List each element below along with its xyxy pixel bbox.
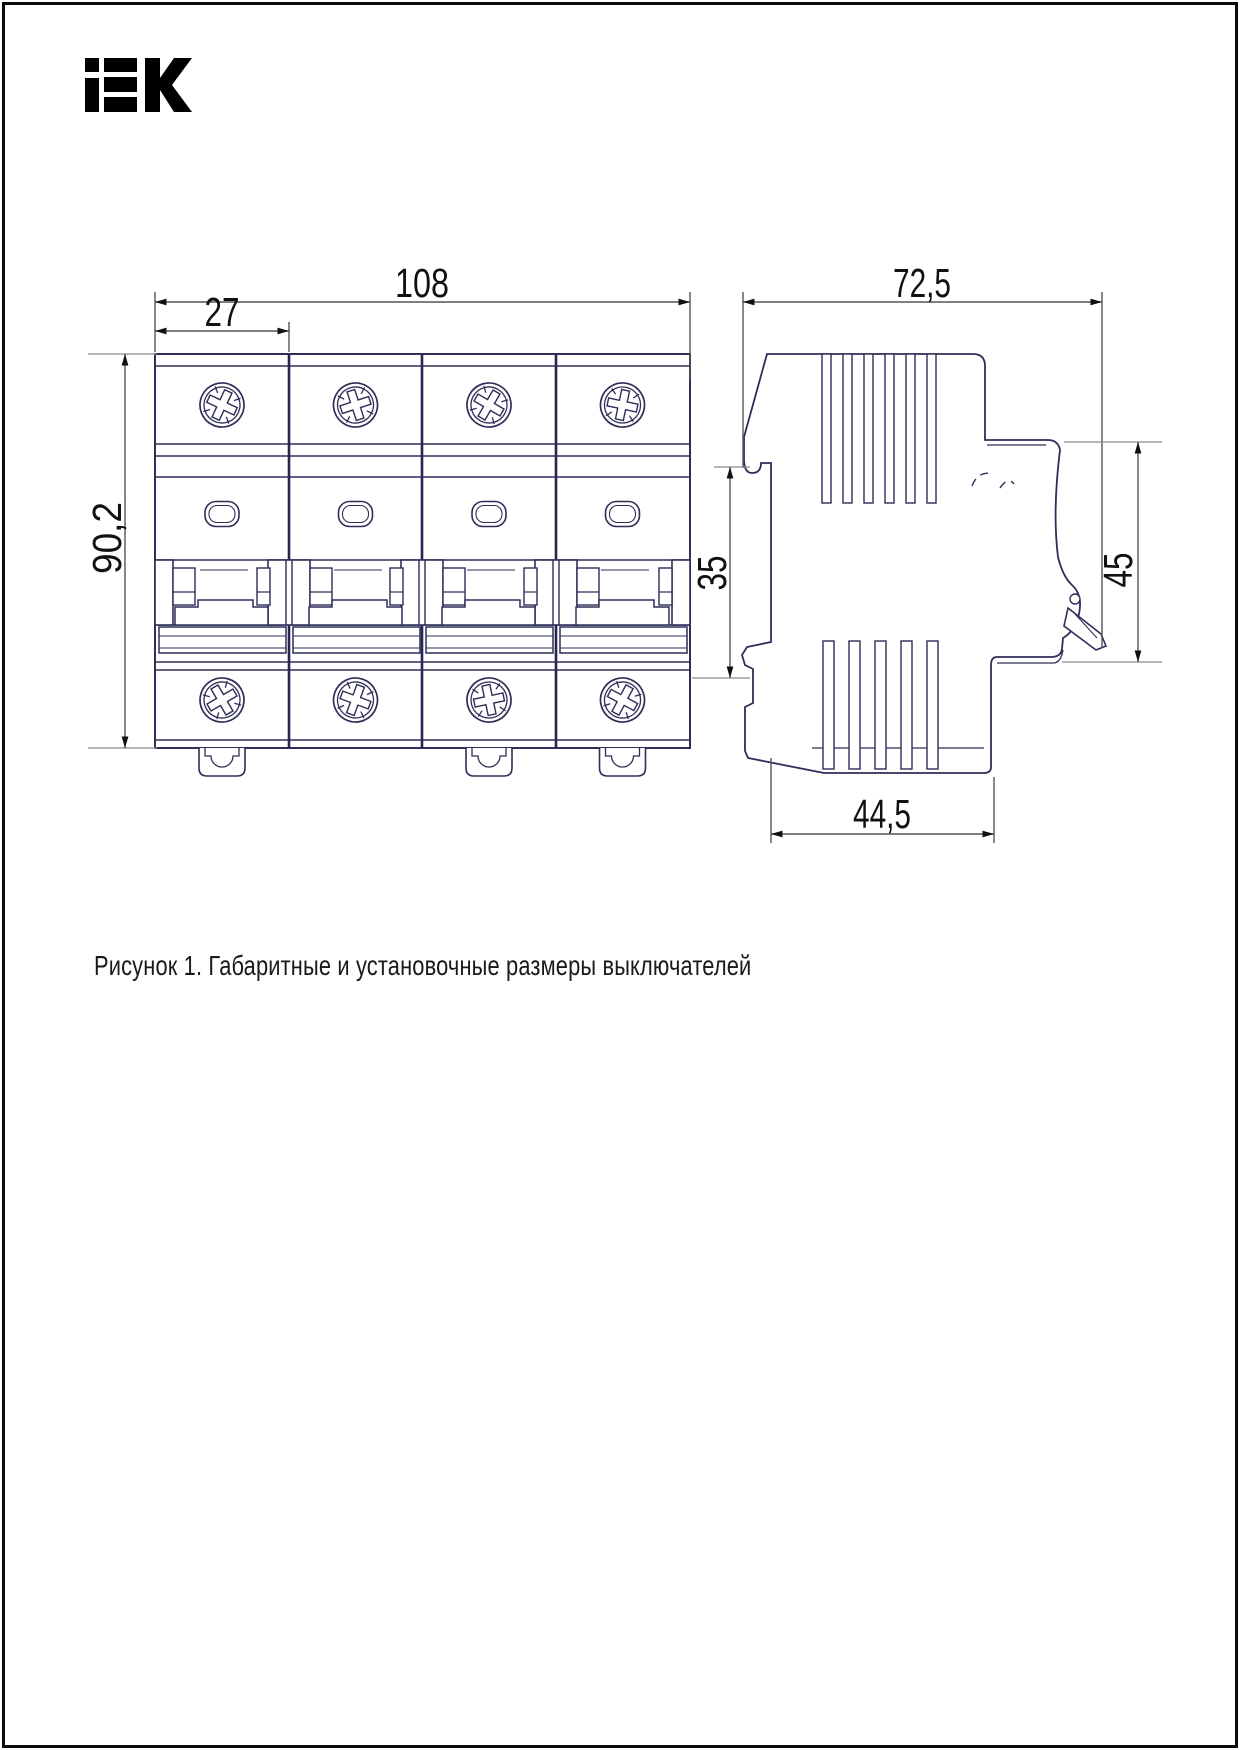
logo-letter-i	[85, 58, 99, 112]
logo-letter-k	[145, 58, 192, 112]
din-clip	[600, 748, 646, 776]
dim-label: 108	[395, 260, 449, 306]
indicator-window	[472, 502, 506, 527]
dim-label: 45	[1095, 553, 1141, 588]
indicator-window	[205, 502, 239, 527]
din-clip	[466, 748, 512, 776]
figure-caption: Рисунок 1. Габаритные и установочные раз…	[94, 950, 751, 982]
dim-27: 27	[155, 289, 289, 352]
latch-tab	[535, 560, 577, 625]
dim-label: 44,5	[853, 791, 911, 837]
latch-tab	[401, 560, 443, 625]
lever-pivot-hole	[1070, 594, 1080, 604]
indicator-window	[606, 502, 640, 527]
dim-label: 72,5	[893, 260, 951, 306]
dim-label: 90,2	[84, 502, 130, 574]
datasheet-page: 108 27 90,2	[0, 0, 1240, 1750]
dim-35: 35	[689, 467, 750, 678]
dimension-drawing: 108 27 90,2	[0, 0, 1240, 1750]
dim-label: 27	[205, 289, 240, 335]
side-view	[742, 354, 1106, 773]
din-clip	[199, 748, 245, 776]
din-clips	[199, 748, 646, 776]
front-view	[155, 354, 690, 776]
dim-label: 35	[689, 556, 735, 591]
logo-letter-e	[104, 58, 137, 112]
dim-90-2: 90,2	[84, 354, 157, 748]
indicator-window	[339, 502, 373, 527]
latch-tab	[268, 560, 310, 625]
iek-logo	[85, 58, 192, 112]
